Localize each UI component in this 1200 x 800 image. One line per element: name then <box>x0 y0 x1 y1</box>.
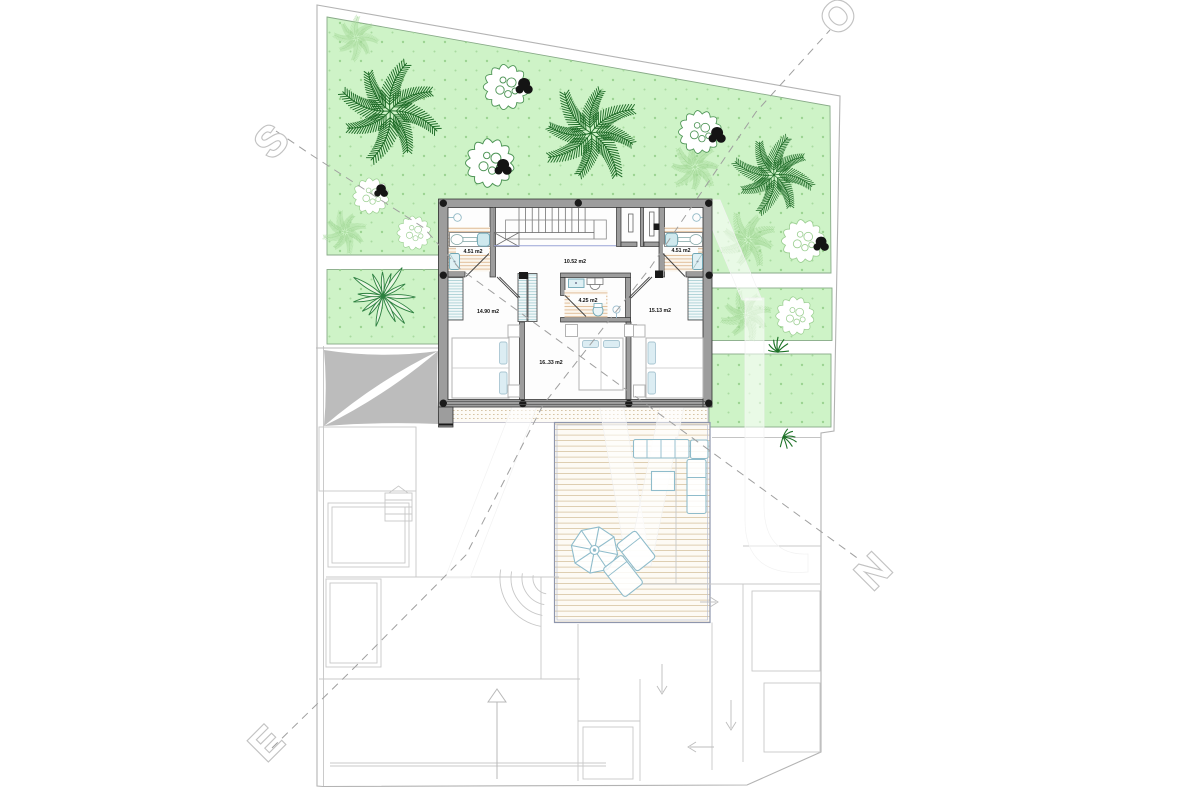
svg-text:4.51 m2: 4.51 m2 <box>671 248 690 254</box>
svg-text:14.90 m2: 14.90 m2 <box>477 309 499 315</box>
svg-text:4.25 m2: 4.25 m2 <box>578 298 597 304</box>
svg-text:15.13 m2: 15.13 m2 <box>649 308 671 314</box>
svg-text:4.51 m2: 4.51 m2 <box>463 249 482 255</box>
svg-text:10.52 m2: 10.52 m2 <box>564 259 586 265</box>
svg-text:16..33 m2: 16..33 m2 <box>539 360 562 366</box>
